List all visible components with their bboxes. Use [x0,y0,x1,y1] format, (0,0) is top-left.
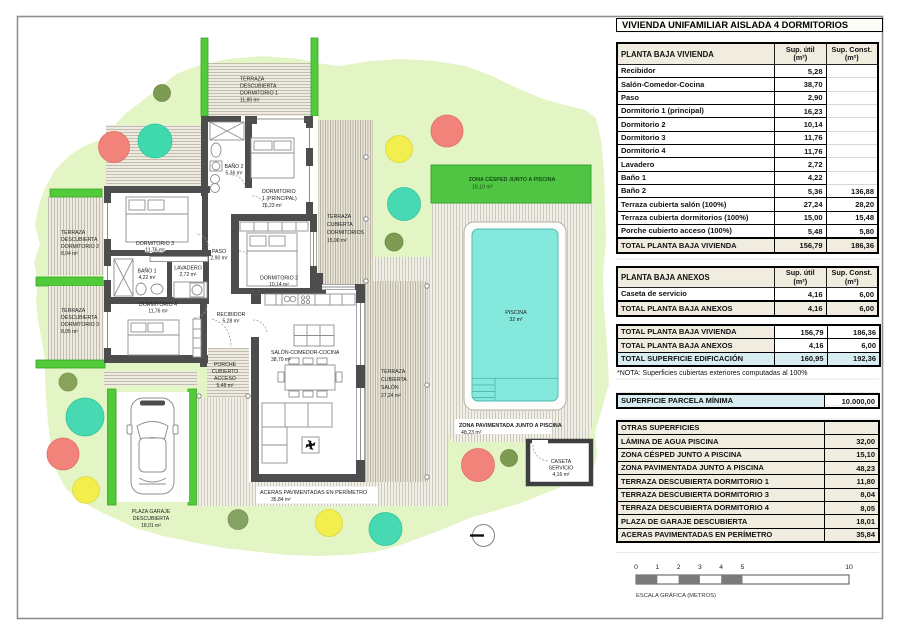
svg-text:38,70 m²: 38,70 m² [271,357,291,363]
svg-text:SALÓN: SALÓN [381,384,399,391]
svg-text:ZONA PAVIMENTADA JUNTO A PISCI: ZONA PAVIMENTADA JUNTO A PISCINA [459,423,562,429]
svg-text:SERVICIO: SERVICIO [549,466,574,472]
svg-text:5,28 m²: 5,28 m² [223,319,240,325]
svg-text:DESCUBIERTA: DESCUBIERTA [240,84,277,90]
svg-text:ACCESO: ACCESO [214,376,236,382]
svg-text:DESCUBIERTA: DESCUBIERTA [61,237,98,243]
svg-text:1 (PRINCIPAL): 1 (PRINCIPAL) [262,196,297,202]
svg-text:ACERAS PAVIMENTADAS EN PERÍMET: ACERAS PAVIMENTADAS EN PERÍMETRO [260,489,367,496]
svg-text:DORMITORIOS: DORMITORIOS [327,230,365,236]
svg-text:DORMITORIO 4: DORMITORIO 4 [139,302,177,308]
svg-text:10,14 m²: 10,14 m² [269,282,289,288]
svg-text:11,76 m²: 11,76 m² [148,309,168,315]
svg-text:SALÓN-COMEDOR-COCINA: SALÓN-COMEDOR-COCINA [271,349,340,356]
svg-text:DORMITORIO: DORMITORIO [262,189,296,195]
svg-text:5,36 m²: 5,36 m² [226,171,243,177]
svg-text:4,22 m²: 4,22 m² [139,275,156,281]
svg-text:BAÑO 2: BAÑO 2 [224,163,243,170]
svg-text:48,23 m²: 48,23 m² [461,430,482,436]
svg-text:5: 5 [741,564,745,571]
svg-text:CUBIERTO: CUBIERTO [212,369,239,375]
svg-text:DORMITORIO 3: DORMITORIO 3 [136,241,174,247]
svg-text:TERRAZA: TERRAZA [240,77,265,83]
svg-text:11,76 m²: 11,76 m² [145,248,165,254]
svg-text:LAVADERO: LAVADERO [174,266,201,272]
svg-text:TERRAZA: TERRAZA [61,230,86,236]
svg-text:CUBIERTA: CUBIERTA [327,222,353,228]
svg-text:4: 4 [719,564,723,571]
svg-text:15,10 m²: 15,10 m² [472,185,493,191]
svg-text:DORMITORIO 3: DORMITORIO 3 [61,322,99,328]
svg-text:2: 2 [677,564,681,571]
svg-text:15,00 m²: 15,00 m² [327,238,347,244]
svg-text:TERRAZA: TERRAZA [381,369,406,375]
svg-text:CASETA: CASETA [551,459,572,465]
svg-text:11,80 m²: 11,80 m² [240,98,260,104]
svg-text:DESCUBIERTA: DESCUBIERTA [61,315,98,321]
svg-text:2,90 m²: 2,90 m² [211,256,228,262]
svg-text:2,72 m²: 2,72 m² [180,272,197,278]
svg-text:18,01 m²: 18,01 m² [141,523,161,529]
svg-text:16,23 m²: 16,23 m² [262,203,282,209]
svg-text:PASO: PASO [212,249,226,255]
svg-text:DESCUBIERTA: DESCUBIERTA [133,516,170,522]
svg-text:PLAZA GARAJE: PLAZA GARAJE [132,509,171,515]
svg-text:32 m²: 32 m² [509,317,523,323]
svg-text:PORCHE: PORCHE [214,362,237,368]
svg-text:35,84 m²: 35,84 m² [271,497,291,503]
svg-text:DORMITORIO 2: DORMITORIO 2 [260,276,298,282]
svg-text:27,24 m²: 27,24 m² [381,393,401,399]
svg-text:10: 10 [845,564,853,571]
svg-text:4,16 m²: 4,16 m² [553,472,570,478]
svg-text:8,04 m²: 8,04 m² [61,251,78,257]
svg-text:PISCINA: PISCINA [505,310,527,316]
svg-text:DORMITORIO 2: DORMITORIO 2 [61,244,99,250]
svg-text:3: 3 [698,564,702,571]
svg-text:0: 0 [634,564,638,571]
svg-text:DORMITORIO 1: DORMITORIO 1 [240,91,278,97]
svg-text:RECIBIDOR: RECIBIDOR [217,312,246,318]
svg-text:5,48 m²: 5,48 m² [217,383,234,389]
svg-text:BAÑO 1: BAÑO 1 [137,268,156,275]
svg-text:1: 1 [655,564,659,571]
svg-text:TERRAZA: TERRAZA [327,214,352,220]
svg-text:CUBIERTA: CUBIERTA [381,377,407,383]
svg-text:ESCALA GRÁFICA (METROS): ESCALA GRÁFICA (METROS) [636,592,716,599]
svg-text:8,05 m²: 8,05 m² [61,329,78,335]
svg-text:ZONA CÉSPED JUNTO A PISCINA: ZONA CÉSPED JUNTO A PISCINA [469,175,556,183]
svg-text:TERRAZA: TERRAZA [61,308,86,314]
